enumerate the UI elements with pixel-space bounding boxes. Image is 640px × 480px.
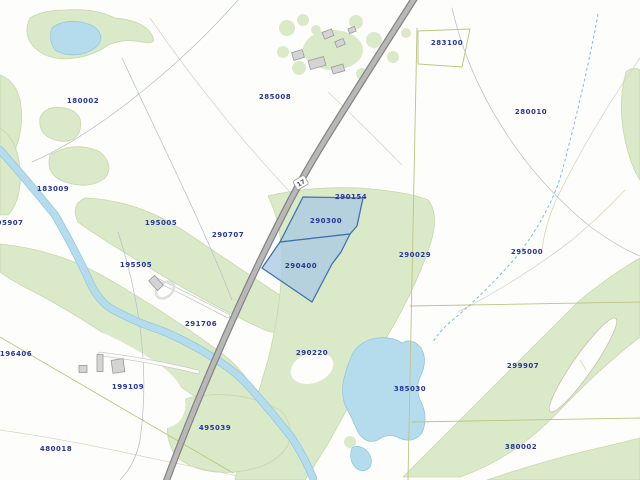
parcel-label-180002: 180002 [67,97,99,105]
map-canvas[interactable]: 17 1800022850082831002800101830099590719… [0,0,640,480]
parcel-label-283100: 283100 [431,39,463,47]
parcel-label-290154: 290154 [335,193,367,201]
parcel-label-299907: 299907 [507,362,539,370]
parcel-label-280010: 280010 [515,108,547,116]
parcel-label-285008: 285008 [259,93,291,101]
parcel-label-290220: 290220 [296,349,328,357]
parcel-label-295000: 295000 [511,248,543,256]
parcel-label-290400: 290400 [285,262,317,270]
parcel-label-291706: 291706 [185,320,217,328]
intermittent-stream [433,14,598,342]
parcel-label-290029: 290029 [399,251,431,259]
parcel-label-95907: 95907 [0,219,23,227]
parcel-label-495039: 495039 [199,424,231,432]
parcel-label-290707: 290707 [212,231,244,239]
map-svg: 17 1800022850082831002800101830099590719… [0,0,640,480]
parcel-label-199109: 199109 [112,383,144,391]
parcel-label-196406: 196406 [0,350,32,358]
parcel-label-195005: 195005 [145,219,177,227]
parcel-label-380002: 380002 [505,443,537,451]
parcel-label-290300: 290300 [310,217,342,225]
parcel-label-385030: 385030 [394,385,426,393]
parcel-label-480018: 480018 [40,445,72,453]
parcel-label-183009: 183009 [37,185,69,193]
parcel-label-195505: 195505 [120,261,152,269]
